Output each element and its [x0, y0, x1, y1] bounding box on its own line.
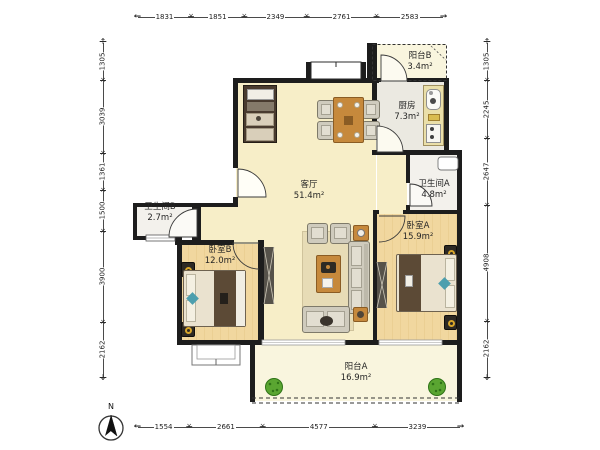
dimension-value: 4908: [482, 254, 491, 272]
dimension-segment: 2583: [376, 10, 443, 24]
ruler-tick: ×: [100, 77, 106, 84]
window-jamb: [306, 62, 311, 79]
dimension-segment: 2245×: [478, 80, 496, 138]
room-area: 51.4m²: [279, 191, 339, 202]
wall: [233, 83, 238, 168]
ruler-tick: ×: [188, 13, 194, 20]
north-compass-icon: [99, 415, 123, 440]
room-entry-floor: [201, 205, 238, 245]
cabinet: [243, 85, 277, 143]
dimension-value: 4577: [309, 424, 329, 431]
wall: [192, 207, 201, 240]
room-hallway-floor: [377, 152, 407, 214]
dimension-segment: 1554×: [138, 420, 189, 434]
dimension-value: 1851: [208, 14, 228, 21]
room-name: 阳台A: [326, 362, 386, 373]
room-area: 3.4m²: [390, 62, 450, 73]
room-name: 卧室A: [388, 221, 448, 232]
wall: [406, 205, 410, 214]
ruler-tick: ×: [186, 423, 192, 430]
dimension-value: 3239: [408, 424, 428, 431]
dimension-value: 2761: [332, 14, 352, 21]
dimension-value: 2583: [400, 14, 420, 21]
wardrobe: [377, 262, 387, 308]
nightstand: [444, 315, 457, 330]
wall: [407, 78, 449, 82]
room-area: 7.3m²: [377, 112, 437, 123]
wall: [444, 78, 449, 152]
room-label-living: 客厅 51.4m²: [279, 180, 339, 202]
wall: [250, 345, 255, 402]
ruler-bottom: ←→1554×2661×4577×3239: [138, 420, 460, 434]
ruler-tick: ×: [100, 187, 106, 194]
bed-a: [396, 254, 457, 312]
ruler-tick: ×: [260, 423, 266, 430]
wardrobe: [264, 247, 274, 304]
wall: [373, 210, 379, 214]
ruler-left: ↑↓1305×3039×1361×1500×3900×2162: [94, 43, 112, 377]
dimension-value: 2661: [216, 424, 236, 431]
room-area: 16.9m²: [326, 373, 386, 384]
dimension-segment: 1851×: [191, 10, 244, 24]
ruler-tick: ×: [484, 202, 490, 209]
loveseat: [302, 306, 350, 333]
room-name: 厨房: [377, 101, 437, 112]
dimension-value: 3039: [98, 107, 107, 125]
room-label-bed-a: 卧室A 15.9m²: [388, 221, 448, 243]
ruler-end-arrow: ↑: [484, 38, 491, 46]
dimension-segment: 4908×: [478, 205, 496, 321]
room-label-balcony-a: 阳台A 16.9m²: [326, 362, 386, 384]
ruler-tick: ×: [100, 319, 106, 326]
dimension-value: 1554: [154, 424, 174, 431]
dimension-value: 1361: [98, 163, 107, 181]
ruler-end-arrow: ↓: [484, 374, 491, 382]
dimension-value: 2245: [482, 100, 491, 118]
ruler-tick: ×: [484, 318, 490, 325]
room-label-bed-b: 卧室B 12.0m²: [190, 245, 250, 267]
coffee-table: [316, 255, 341, 293]
dimension-value: 2349: [266, 14, 286, 21]
wall: [457, 345, 462, 402]
dimension-value: 1831: [155, 14, 175, 21]
ruler-end-arrow: →: [440, 13, 447, 21]
room-area: 2.7m²: [130, 213, 190, 224]
ruler-tick: ×: [241, 13, 247, 20]
ruler-end-arrow: ←: [134, 13, 141, 21]
ruler-tick: ×: [484, 77, 490, 84]
dimension-value: 2162: [98, 341, 107, 359]
room-area: 12.0m²: [190, 256, 250, 267]
dining-chair: [362, 121, 380, 140]
dimension-segment: 2661×: [189, 420, 263, 434]
room-area: 15.9m²: [388, 232, 448, 243]
armchair: [330, 223, 351, 244]
compass-label: N: [104, 402, 118, 411]
dimension-value: 1305: [98, 52, 107, 70]
ruler-tick: ×: [372, 423, 378, 430]
room-name: 卧室B: [190, 245, 250, 256]
floorplan-canvas: ←→1831×1851×2349×2761×2583 ←→1554×2661×4…: [0, 0, 600, 450]
room-label-balcony-b: 阳台B 3.4m²: [390, 51, 450, 73]
room-label-bath-a: 卫生间A 4.8m²: [404, 179, 464, 201]
room-name: 阳台B: [390, 51, 450, 62]
ruler-tick: ×: [100, 228, 106, 235]
ruler-tick: ×: [374, 13, 380, 20]
dimension-segment: 2349×: [244, 10, 306, 24]
ruler-end-arrow: →: [457, 423, 464, 431]
sofa: [348, 241, 370, 314]
ruler-right: ↑↓1305×2245×2647×4908×2162: [478, 43, 496, 377]
dimension-segment: 1361×: [94, 153, 112, 191]
room-area: 4.8m²: [404, 190, 464, 201]
armchair: [307, 223, 328, 244]
bed-b: [183, 270, 246, 327]
dimension-segment: 3039×: [94, 80, 112, 153]
dimension-segment: 4577×: [263, 420, 375, 434]
room-name: 卫生间A: [404, 179, 464, 190]
ruler-end-arrow: ↓: [100, 374, 107, 382]
wall: [403, 210, 462, 214]
dining-table: [333, 97, 364, 143]
dimension-segment: 2162: [478, 321, 496, 377]
dimension-segment: 2647×: [478, 138, 496, 205]
dimension-value: 3900: [98, 268, 107, 286]
room-name: 客厅: [279, 180, 339, 191]
dimension-segment: 3239: [375, 420, 460, 434]
dimension-segment: 1831×: [138, 10, 191, 24]
ruler-tick: ×: [100, 150, 106, 157]
dimension-segment: 3900×: [94, 231, 112, 322]
wall: [133, 236, 146, 240]
room-label-bath-b: 卫生间B 2.7m²: [130, 202, 190, 224]
dimension-segment: 2761×: [307, 10, 377, 24]
ruler-tick: ×: [304, 13, 310, 20]
side-table: [353, 225, 369, 241]
ruler-top: ←→1831×1851×2349×2761×2583: [138, 10, 443, 24]
dimension-value: 2162: [482, 340, 491, 358]
room-label-kitchen: 厨房 7.3m²: [377, 101, 437, 123]
wall: [367, 43, 377, 81]
dimension-segment: 2162: [94, 322, 112, 377]
ruler-tick: ×: [484, 135, 490, 142]
dimension-segment: 1305×: [94, 43, 112, 80]
dimension-value: 1500: [98, 202, 107, 220]
dimension-value: 2647: [482, 163, 491, 181]
dimension-value: 1305: [482, 53, 491, 71]
window-jamb: [361, 62, 366, 79]
dimension-segment: 1500×: [94, 190, 112, 231]
side-table: [353, 307, 368, 322]
ruler-end-arrow: ↑: [100, 38, 107, 46]
room-name: 卫生间B: [130, 202, 190, 213]
ruler-end-arrow: ←: [134, 423, 141, 431]
dimension-segment: 1305×: [478, 43, 496, 80]
